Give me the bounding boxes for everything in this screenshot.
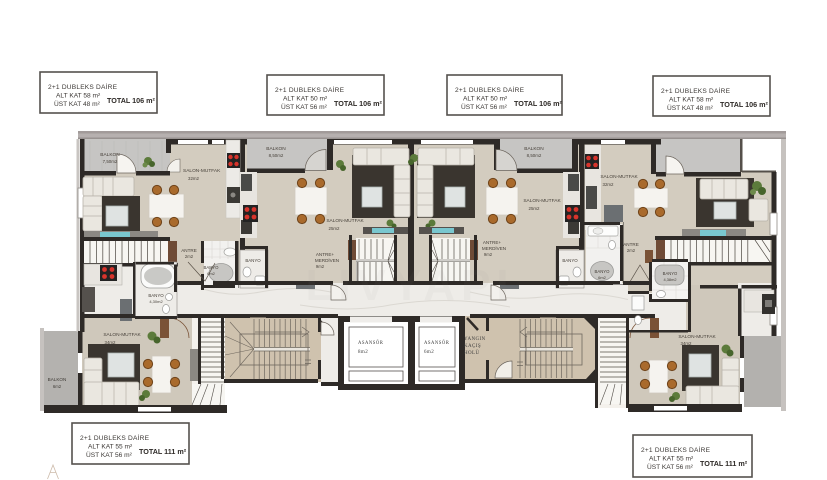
svg-text:ALT KAT 50 m²: ALT KAT 50 m² xyxy=(463,96,508,103)
svg-text:BANYO: BANYO xyxy=(148,293,164,298)
svg-text:SALON-MUTFAK: SALON-MUTFAK xyxy=(678,334,716,340)
svg-text:ALT KAT 50 m²: ALT KAT 50 m² xyxy=(283,96,328,103)
svg-text:9m2: 9m2 xyxy=(484,252,493,257)
svg-text:6m2: 6m2 xyxy=(53,384,62,389)
svg-text:BANYO: BANYO xyxy=(594,269,610,274)
svg-text:ANTRE+: ANTRE+ xyxy=(316,252,335,257)
svg-text:ALT KAT 58 m²: ALT KAT 58 m² xyxy=(56,93,101,100)
svg-text:4,30m2: 4,30m2 xyxy=(149,299,163,304)
svg-text:ANTRE: ANTRE xyxy=(181,248,197,253)
svg-text:4,38m2: 4,38m2 xyxy=(664,277,677,282)
svg-text:SALON-MUTFAK: SALON-MUTFAK xyxy=(523,198,561,204)
svg-text:ANTRE: ANTRE xyxy=(623,242,639,247)
svg-text:BALKON: BALKON xyxy=(100,152,120,158)
svg-text:BANYO: BANYO xyxy=(663,271,678,276)
svg-text:2+1 DUBLEKS DAİRE: 2+1 DUBLEKS DAİRE xyxy=(455,85,525,94)
svg-text:ÜST KAT 48 m²: ÜST KAT 48 m² xyxy=(667,104,714,112)
svg-text:HOLÜ: HOLÜ xyxy=(464,350,480,356)
svg-text:2+1 DUBLEKS DAİRE: 2+1 DUBLEKS DAİRE xyxy=(275,85,345,94)
svg-text:TOTAL 106 m²: TOTAL 106 m² xyxy=(334,99,383,108)
svg-text:2+1 DUBLEKS DAİRE: 2+1 DUBLEKS DAİRE xyxy=(661,86,731,95)
svg-text:TOTAL 111 m²: TOTAL 111 m² xyxy=(139,447,187,456)
svg-text:25m2: 25m2 xyxy=(529,206,541,211)
svg-text:BALKON: BALKON xyxy=(48,377,67,382)
svg-text:BANYO: BANYO xyxy=(245,258,261,263)
svg-text:6m2: 6m2 xyxy=(424,350,434,355)
svg-text:MERDİVEN: MERDİVEN xyxy=(482,245,506,251)
svg-text:8,50m2: 8,50m2 xyxy=(269,153,284,158)
svg-text:ANTRE+: ANTRE+ xyxy=(483,240,502,245)
svg-text:TOTAL 106 m²: TOTAL 106 m² xyxy=(720,100,769,109)
svg-text:2m2: 2m2 xyxy=(627,248,636,253)
svg-text:YANGIN: YANGIN xyxy=(464,337,486,342)
svg-text:ÜST KAT 56 m²: ÜST KAT 56 m² xyxy=(647,463,694,471)
svg-text:BALKON: BALKON xyxy=(266,146,286,152)
svg-text:SALON-MUTFAK: SALON-MUTFAK xyxy=(600,174,638,180)
svg-text:7,50m2: 7,50m2 xyxy=(103,159,118,164)
svg-text:ÜST KAT 56 m²: ÜST KAT 56 m² xyxy=(281,103,328,111)
svg-text:2+1 DUBLEKS DAİRE: 2+1 DUBLEKS DAİRE xyxy=(641,445,711,454)
svg-text:LIVYAPI: LIVYAPI xyxy=(305,261,514,310)
svg-text:ALT KAT 58 m²: ALT KAT 58 m² xyxy=(669,97,714,104)
svg-text:2+1 DUBLEKS DAİRE: 2+1 DUBLEKS DAİRE xyxy=(80,433,150,442)
svg-text:8,50m2: 8,50m2 xyxy=(527,153,542,158)
svg-text:2+1 DUBLEKS DAİRE: 2+1 DUBLEKS DAİRE xyxy=(48,82,118,91)
svg-text:SALON-MUTFAK: SALON-MUTFAK xyxy=(103,332,141,338)
svg-text:ÜST KAT 56 m²: ÜST KAT 56 m² xyxy=(461,103,508,111)
svg-text:ALT KAT 55 m²: ALT KAT 55 m² xyxy=(649,456,694,463)
svg-text:ÜST KAT 48 m²: ÜST KAT 48 m² xyxy=(54,100,101,108)
svg-text:TOTAL 111 m²: TOTAL 111 m² xyxy=(700,459,748,468)
svg-text:6m2: 6m2 xyxy=(598,275,607,280)
svg-text:TOTAL 106 m²: TOTAL 106 m² xyxy=(107,96,156,105)
svg-text:ÜST KAT 56 m²: ÜST KAT 56 m² xyxy=(86,451,133,459)
svg-text:2m2: 2m2 xyxy=(185,254,194,259)
svg-text:BANYO: BANYO xyxy=(562,258,578,263)
svg-text:SALON-MUTFAK: SALON-MUTFAK xyxy=(326,218,364,224)
svg-text:32m2: 32m2 xyxy=(188,176,200,181)
svg-text:32m2: 32m2 xyxy=(603,182,615,187)
svg-text:BALKON: BALKON xyxy=(524,146,544,152)
svg-text:ASANSÖR: ASANSÖR xyxy=(358,340,384,346)
svg-text:KAÇIŞ: KAÇIŞ xyxy=(464,344,481,349)
svg-text:25m2: 25m2 xyxy=(329,226,341,231)
svg-text:ASANSÖR: ASANSÖR xyxy=(424,340,450,346)
svg-text:TOTAL 106 m²: TOTAL 106 m² xyxy=(514,99,563,108)
svg-text:8m2: 8m2 xyxy=(358,350,368,355)
svg-text:SALON-MUTFAK: SALON-MUTFAK xyxy=(183,168,221,174)
svg-text:ALT KAT 55 m²: ALT KAT 55 m² xyxy=(88,444,133,451)
